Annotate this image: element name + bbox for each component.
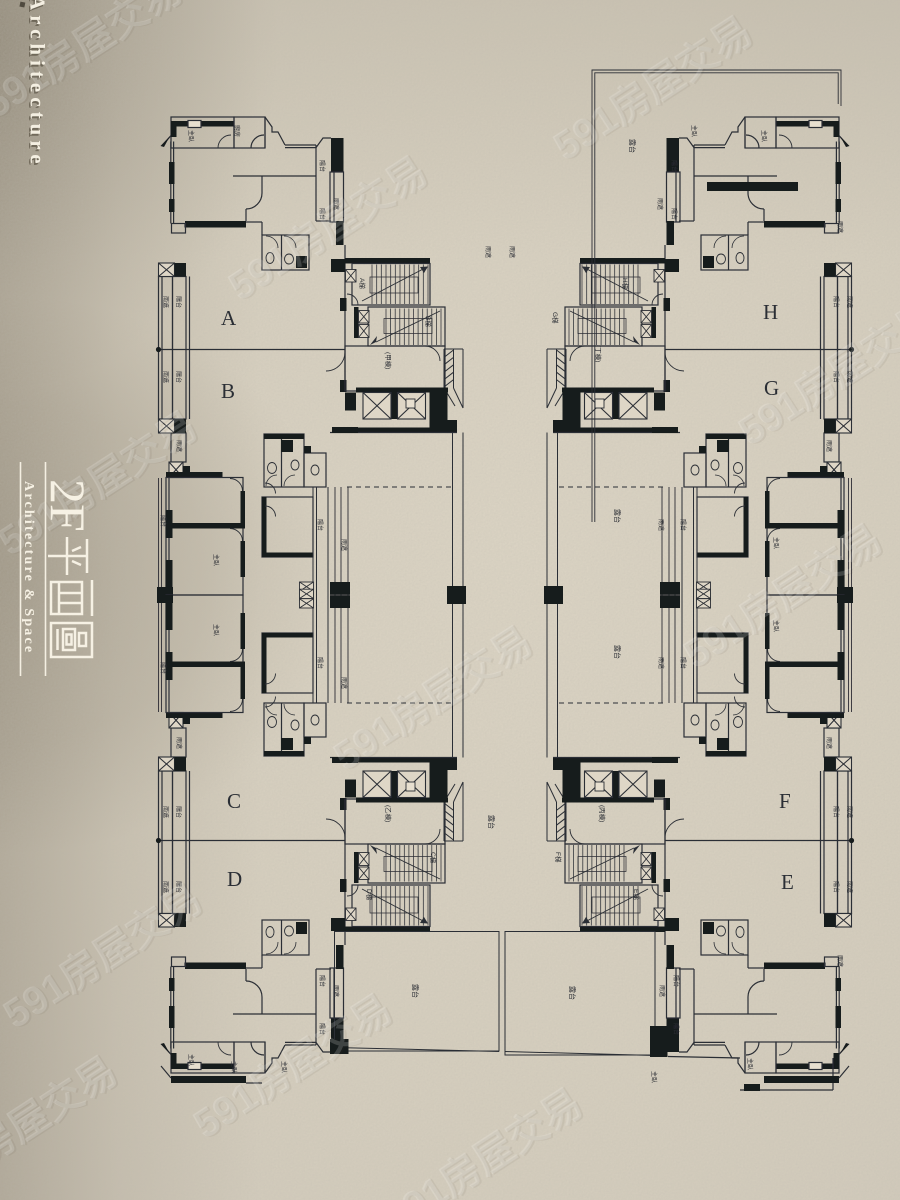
svg-text:主臥: 主臥	[230, 1061, 238, 1073]
svg-text:(乙棟): (乙棟)	[384, 805, 393, 822]
svg-text:雨遮: 雨遮	[175, 737, 183, 749]
svg-text:陽台: 陽台	[159, 662, 167, 674]
svg-text:B: B	[221, 379, 235, 403]
svg-text:E: E	[781, 870, 794, 894]
svg-text:雨遮: 雨遮	[162, 806, 170, 818]
svg-text:D: D	[227, 867, 242, 891]
svg-text:Architecture: Architecture	[26, 0, 50, 169]
svg-text:D梯: D梯	[365, 889, 374, 901]
svg-text:露台: 露台	[613, 509, 622, 523]
svg-text:雨遮: 雨遮	[162, 371, 170, 383]
svg-text:C: C	[227, 789, 241, 813]
svg-text:陽台: 陽台	[679, 519, 687, 531]
svg-text:雨遮: 雨遮	[658, 985, 666, 997]
svg-text:雨遮: 雨遮	[836, 955, 844, 967]
svg-text:C梯: C梯	[429, 852, 438, 864]
svg-text:雨遮: 雨遮	[484, 246, 492, 258]
svg-text:雨遮: 雨遮	[162, 296, 170, 308]
svg-text:陽台: 陽台	[672, 1023, 680, 1035]
svg-text:露台: 露台	[628, 139, 637, 153]
svg-text:主臥: 主臥	[187, 1054, 195, 1066]
svg-text:露台: 露台	[487, 815, 496, 829]
svg-text:H: H	[763, 300, 778, 324]
svg-text:F: F	[779, 789, 791, 813]
svg-text:E梯: E梯	[632, 889, 641, 900]
svg-text:陽台: 陽台	[672, 975, 680, 987]
svg-text:主臥: 主臥	[212, 554, 220, 566]
svg-text:陽台: 陽台	[832, 296, 840, 308]
svg-text:雨遮: 雨遮	[825, 737, 833, 749]
svg-text:陽台: 陽台	[175, 371, 183, 383]
svg-text:雨遮: 雨遮	[340, 677, 348, 689]
svg-text:陽台: 陽台	[670, 208, 678, 220]
svg-text:主臥: 主臥	[772, 537, 780, 549]
svg-text:主臥: 主臥	[650, 1071, 658, 1083]
svg-text:露台: 露台	[411, 984, 420, 998]
svg-text:主臥: 主臥	[212, 624, 220, 636]
svg-text:陽台: 陽台	[832, 806, 840, 818]
svg-text:雨遮: 雨遮	[836, 221, 844, 233]
svg-text:A: A	[221, 306, 237, 330]
svg-text:陽台: 陽台	[318, 160, 326, 172]
svg-text:陽台: 陽台	[318, 975, 326, 987]
svg-text:陽台: 陽台	[670, 160, 678, 172]
svg-text:陽台: 陽台	[832, 881, 840, 893]
svg-text:雨遮: 雨遮	[508, 246, 516, 258]
svg-text:雨遮: 雨遮	[656, 198, 664, 210]
svg-text:雨遮: 雨遮	[846, 806, 854, 818]
svg-text:(丁棟): (丁棟)	[594, 345, 603, 362]
svg-text:主臥: 主臥	[187, 130, 195, 142]
svg-text:陽台: 陽台	[159, 515, 167, 527]
svg-text:主臥: 主臥	[690, 125, 698, 137]
svg-text:Architecture & Space: Architecture & Space	[21, 481, 36, 654]
svg-text:主臥: 主臥	[760, 130, 768, 142]
svg-text:雨遮: 雨遮	[340, 539, 348, 551]
svg-text:主臥: 主臥	[746, 1058, 754, 1070]
svg-text:雨遮: 雨遮	[846, 881, 854, 893]
svg-text:(丙棟): (丙棟)	[598, 805, 607, 822]
svg-text:陽台: 陽台	[679, 657, 687, 669]
svg-text:露台: 露台	[568, 986, 577, 1000]
svg-text:露台: 露台	[613, 645, 622, 659]
svg-text:陽台: 陽台	[316, 519, 324, 531]
svg-text:A梯: A梯	[358, 278, 367, 289]
svg-text:F梯: F梯	[554, 852, 563, 863]
svg-text:廚房: 廚房	[233, 125, 241, 137]
svg-text:(甲棟): (甲棟)	[384, 352, 393, 369]
svg-text:雨遮: 雨遮	[846, 296, 854, 308]
svg-text:陽台: 陽台	[175, 296, 183, 308]
svg-text:雨遮: 雨遮	[332, 985, 340, 997]
svg-text:2F: 2F	[40, 479, 96, 532]
svg-text:陽台: 陽台	[316, 657, 324, 669]
svg-text:雨遮: 雨遮	[657, 519, 665, 531]
svg-text:B梯: B梯	[424, 316, 433, 327]
svg-text:陽台: 陽台	[175, 806, 183, 818]
svg-text:雨遮: 雨遮	[657, 657, 665, 669]
svg-text:G梯: G梯	[551, 312, 560, 324]
svg-text:雨遮: 雨遮	[825, 440, 833, 452]
svg-text:H梯: H梯	[621, 278, 630, 290]
